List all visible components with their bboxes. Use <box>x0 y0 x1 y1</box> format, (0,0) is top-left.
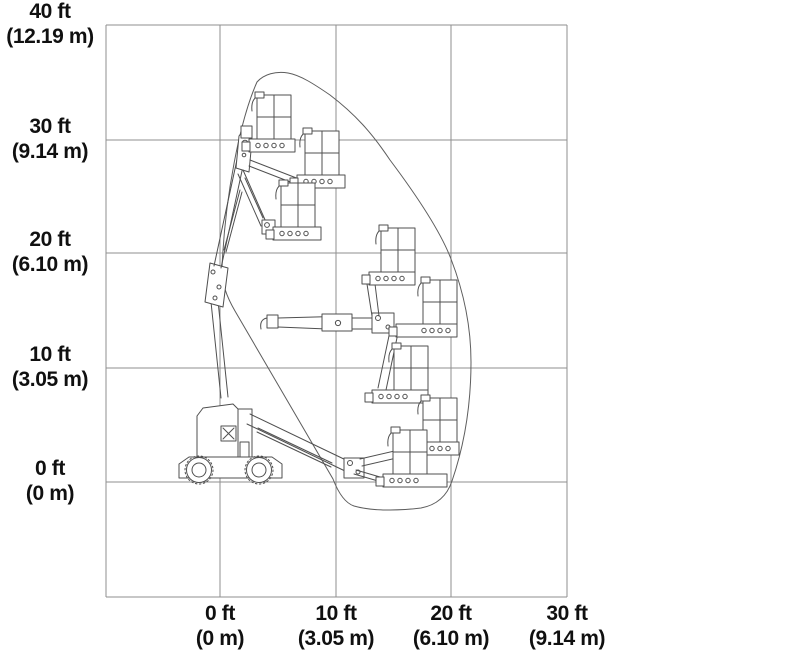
platform-position <box>418 277 457 324</box>
boom-horizontal <box>261 284 398 390</box>
platform-floor <box>362 272 415 285</box>
reach-diagram: 40 ft (12.19 m) 30 ft (9.14 m) 20 ft (6.… <box>0 0 800 656</box>
platform-floor <box>389 324 457 337</box>
platform-position <box>389 343 428 390</box>
jib-hub <box>344 458 364 478</box>
platform-floor <box>266 227 321 240</box>
platform-position <box>300 128 339 175</box>
platform-position <box>252 92 291 139</box>
platform-position <box>388 427 427 474</box>
platform-floor <box>242 139 295 152</box>
platform-floor <box>365 390 428 403</box>
platform-position <box>376 225 415 272</box>
boom-riser-up <box>205 126 299 398</box>
grid-lines <box>106 25 567 597</box>
base-machine <box>179 404 282 484</box>
platform-position <box>276 180 315 227</box>
platform-floor <box>376 474 447 487</box>
diagram-canvas <box>0 0 800 656</box>
